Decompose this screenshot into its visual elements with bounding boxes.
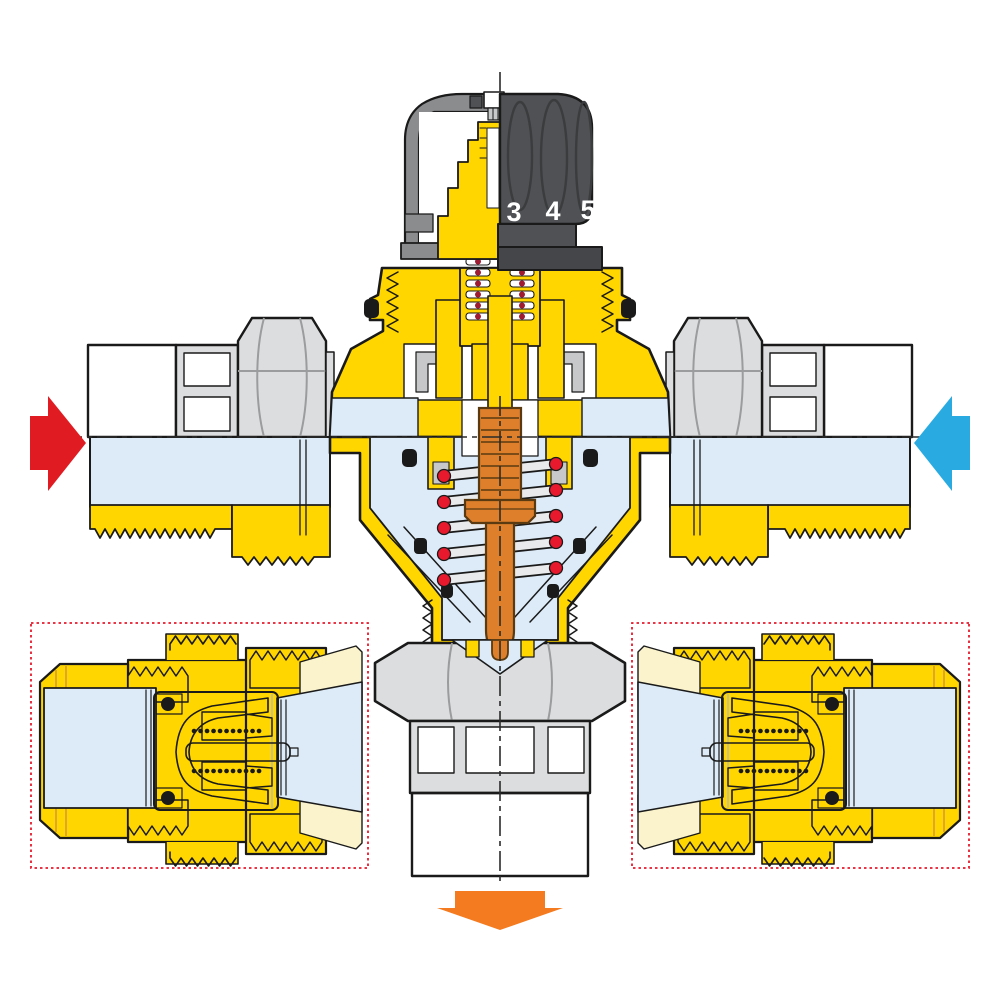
valve-diagram-canvas: 3 4 5 xyxy=(0,0,1000,1000)
valve-diagram: 3 4 5 xyxy=(0,0,1000,1000)
tailpiece-wall-sectioned xyxy=(90,505,232,538)
o-ring xyxy=(364,299,379,318)
o-ring xyxy=(161,697,175,711)
inset-left-bore xyxy=(44,688,156,808)
right-inlet-connection xyxy=(666,318,912,565)
inlet-bore xyxy=(90,437,330,507)
check-valve-inset-right xyxy=(632,623,969,868)
mixed-outlet-arrow-icon xyxy=(437,891,563,930)
o-ring xyxy=(414,538,427,554)
o-ring xyxy=(573,538,586,554)
check-valve-inset-left xyxy=(31,623,368,868)
o-ring xyxy=(161,791,175,805)
o-ring xyxy=(402,449,417,467)
hot-inlet-arrow-icon xyxy=(30,396,86,491)
o-ring xyxy=(621,299,636,318)
o-ring xyxy=(583,449,598,467)
temperature-knob: 3 4 5 xyxy=(401,92,602,270)
cold-inlet-arrow-icon xyxy=(914,396,970,491)
union-nut xyxy=(238,318,326,437)
knob-scale-4: 4 xyxy=(545,196,560,226)
union-nut-wall-sectioned xyxy=(232,505,330,565)
inlet-male-thread xyxy=(88,345,176,437)
left-inlet-connection xyxy=(88,318,334,565)
o-ring xyxy=(547,584,559,598)
knob-scale-3: 3 xyxy=(506,197,521,227)
knob-scale-5: 5 xyxy=(580,195,595,225)
spindle-stem xyxy=(488,296,512,408)
